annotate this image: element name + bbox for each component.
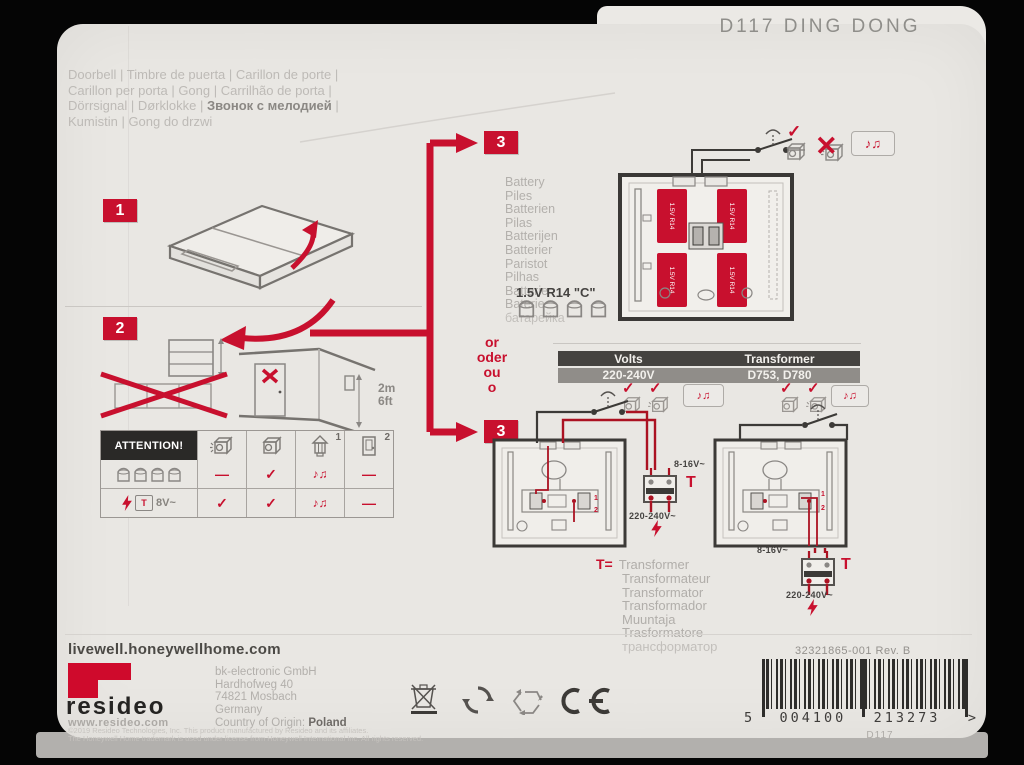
barcode-guard-mid bbox=[862, 659, 865, 717]
language-line-3-post: | bbox=[332, 98, 339, 113]
footer-divider bbox=[65, 634, 972, 635]
legend-word: Transformateur bbox=[622, 572, 717, 586]
address-line: Germany bbox=[215, 704, 317, 717]
battery-word: Batterien bbox=[505, 203, 565, 217]
branch-bracket-arrows bbox=[300, 122, 490, 452]
language-line-3-pre: Dörrsignal | Dørklokke | bbox=[68, 98, 207, 113]
recycle-triangle-icon bbox=[507, 689, 547, 715]
right-transformer-symbol: T bbox=[841, 556, 851, 574]
melody-notes: ♪♫ bbox=[865, 136, 881, 151]
barcode-lead-digit: 5 bbox=[744, 710, 752, 726]
bell-icon bbox=[247, 431, 295, 461]
or-word: oder bbox=[450, 350, 534, 365]
battery-ringing-mark: — bbox=[198, 460, 246, 488]
step-1-badge: 1 bbox=[103, 199, 137, 222]
legal-line-2: The Honeywell Home trademark is used und… bbox=[68, 735, 423, 743]
attention-title: ATTENTION! bbox=[101, 431, 197, 461]
transformer-box-icon: T bbox=[135, 495, 153, 511]
step-2-mounting-orientation bbox=[95, 336, 235, 420]
or-word: or bbox=[450, 335, 534, 350]
legend-word: Trasformatore bbox=[622, 626, 717, 640]
left-transformer-symbol: T bbox=[686, 474, 696, 492]
battery-chime-diagram: 1.5V R14 1.5V R14 1.5V R14 1.5V R14 bbox=[617, 167, 795, 323]
transformer-melody-mark: ♪♫ bbox=[296, 489, 344, 517]
battery-word: Pilas bbox=[505, 217, 565, 231]
language-list: Doorbell | Timbre de puerta | Carillon d… bbox=[68, 67, 339, 129]
transformer-voltage-label: 8V~ bbox=[156, 497, 176, 509]
battery-bell-mark: ✓ bbox=[247, 460, 295, 488]
transformer-wiring-overlay bbox=[480, 390, 1000, 625]
lightning-icon bbox=[122, 495, 132, 511]
transformer-header-cell: Transformer bbox=[699, 351, 860, 366]
weee-bin-icon bbox=[406, 681, 444, 715]
or-word-stack: or oder ou o bbox=[450, 335, 534, 395]
legend-word: Transformer bbox=[619, 558, 689, 572]
battery-row-icon bbox=[101, 460, 197, 488]
language-line-4: Kumistin | Gong do drzwi bbox=[68, 114, 339, 130]
transformer-door-mark: — bbox=[345, 489, 393, 517]
barcode-trail-char: > bbox=[968, 710, 976, 726]
volts-header-cell: Volts bbox=[558, 351, 699, 366]
volts-table-header: Volts Transformer bbox=[558, 351, 860, 366]
website-url: livewell.honeywellhome.com bbox=[68, 641, 281, 658]
battery-word: Battery bbox=[505, 176, 565, 190]
step-3-battery-badge: 3 bbox=[484, 131, 518, 154]
address-line: Hardhofweg 40 bbox=[215, 679, 317, 692]
language-line-3: Dörrsignal | Dørklokke | Звонок с мелоди… bbox=[68, 98, 339, 114]
battery-cell-text: 1.5V R14 bbox=[728, 266, 735, 293]
right-low-voltage-label: 8-16V~ bbox=[757, 545, 788, 555]
battery-word: Paristot bbox=[505, 258, 565, 272]
manufacturer-address: bk-electronic GmbH Hardhofweg 40 74821 M… bbox=[215, 666, 317, 716]
battery-cell-icons bbox=[516, 298, 609, 319]
barcode-digits: 5 004100 213273 > bbox=[744, 710, 976, 726]
packaging-photo: D117 DING DONG Doorbell | Timbre de puer… bbox=[0, 0, 1024, 765]
allowed-bell-icon bbox=[782, 141, 808, 163]
battery-cell-text: 1.5V R14 bbox=[728, 202, 735, 229]
bell-ringing-icon bbox=[198, 431, 246, 461]
right-lightning-icon bbox=[807, 599, 818, 616]
legend-t-symbol: T= bbox=[596, 556, 613, 572]
melody-notes-badge: ♪♫ bbox=[851, 131, 895, 156]
legend-word: Transformador bbox=[622, 599, 717, 613]
green-dot-icon bbox=[461, 685, 495, 715]
battery-cell-text: 1.5V R14 bbox=[668, 202, 675, 229]
left-transformer-icon bbox=[641, 468, 679, 514]
battery-door-mark: — bbox=[345, 460, 393, 488]
left-low-voltage-label: 8-16V~ bbox=[674, 459, 705, 469]
battery-bell-check: ✓ bbox=[787, 122, 801, 142]
language-line-1: Doorbell | Timbre de puerta | Carillon d… bbox=[68, 67, 339, 83]
transformer-bell-mark: ✓ bbox=[247, 489, 295, 517]
barcode-group-1: 004100 bbox=[780, 710, 847, 726]
legend-word: трансформатор bbox=[622, 640, 717, 654]
barcode-group-2: 213273 bbox=[874, 710, 941, 726]
barcode bbox=[762, 659, 968, 709]
battery-word: Batterier bbox=[505, 244, 565, 258]
transformer-legend: T= Transformer Transformateur Transforma… bbox=[596, 556, 717, 653]
legal-fine-print: ©2019 Resideo Technologies, Inc. This pr… bbox=[68, 727, 423, 743]
transformer-row-icon: T 8V~ bbox=[101, 489, 197, 517]
address-line: bk-electronic GmbH bbox=[215, 666, 317, 679]
transformer-ringing-mark: ✓ bbox=[198, 489, 246, 517]
part-number: 32321865-001 Rev. B bbox=[795, 645, 911, 657]
language-line-2: Carillon per porta | Gong | Carrilhão de… bbox=[68, 83, 339, 99]
buzzer-cross-mark: ✕ bbox=[815, 131, 838, 162]
battery-word: Pilhas bbox=[505, 271, 565, 285]
battery-word: Batterijen bbox=[505, 230, 565, 244]
ce-mark-icon bbox=[556, 686, 614, 716]
model-number: D117 bbox=[840, 730, 920, 741]
language-line-3-bold: Звонок с мелодией bbox=[207, 98, 332, 113]
barcode-guard-left bbox=[762, 659, 765, 717]
legend-word: Muuntaja bbox=[622, 613, 717, 627]
battery-melody-mark: ♪♫ bbox=[296, 460, 344, 488]
left-lightning-icon bbox=[651, 520, 662, 537]
product-title: D117 DING DONG bbox=[660, 16, 980, 38]
barcode-guard-right bbox=[965, 659, 968, 717]
battery-word: Piles bbox=[505, 190, 565, 204]
or-word: ou bbox=[450, 365, 534, 380]
legend-word: Transformator bbox=[622, 586, 717, 600]
transformer-section-divider bbox=[553, 343, 861, 344]
address-line: 74821 Mosbach bbox=[215, 691, 317, 704]
